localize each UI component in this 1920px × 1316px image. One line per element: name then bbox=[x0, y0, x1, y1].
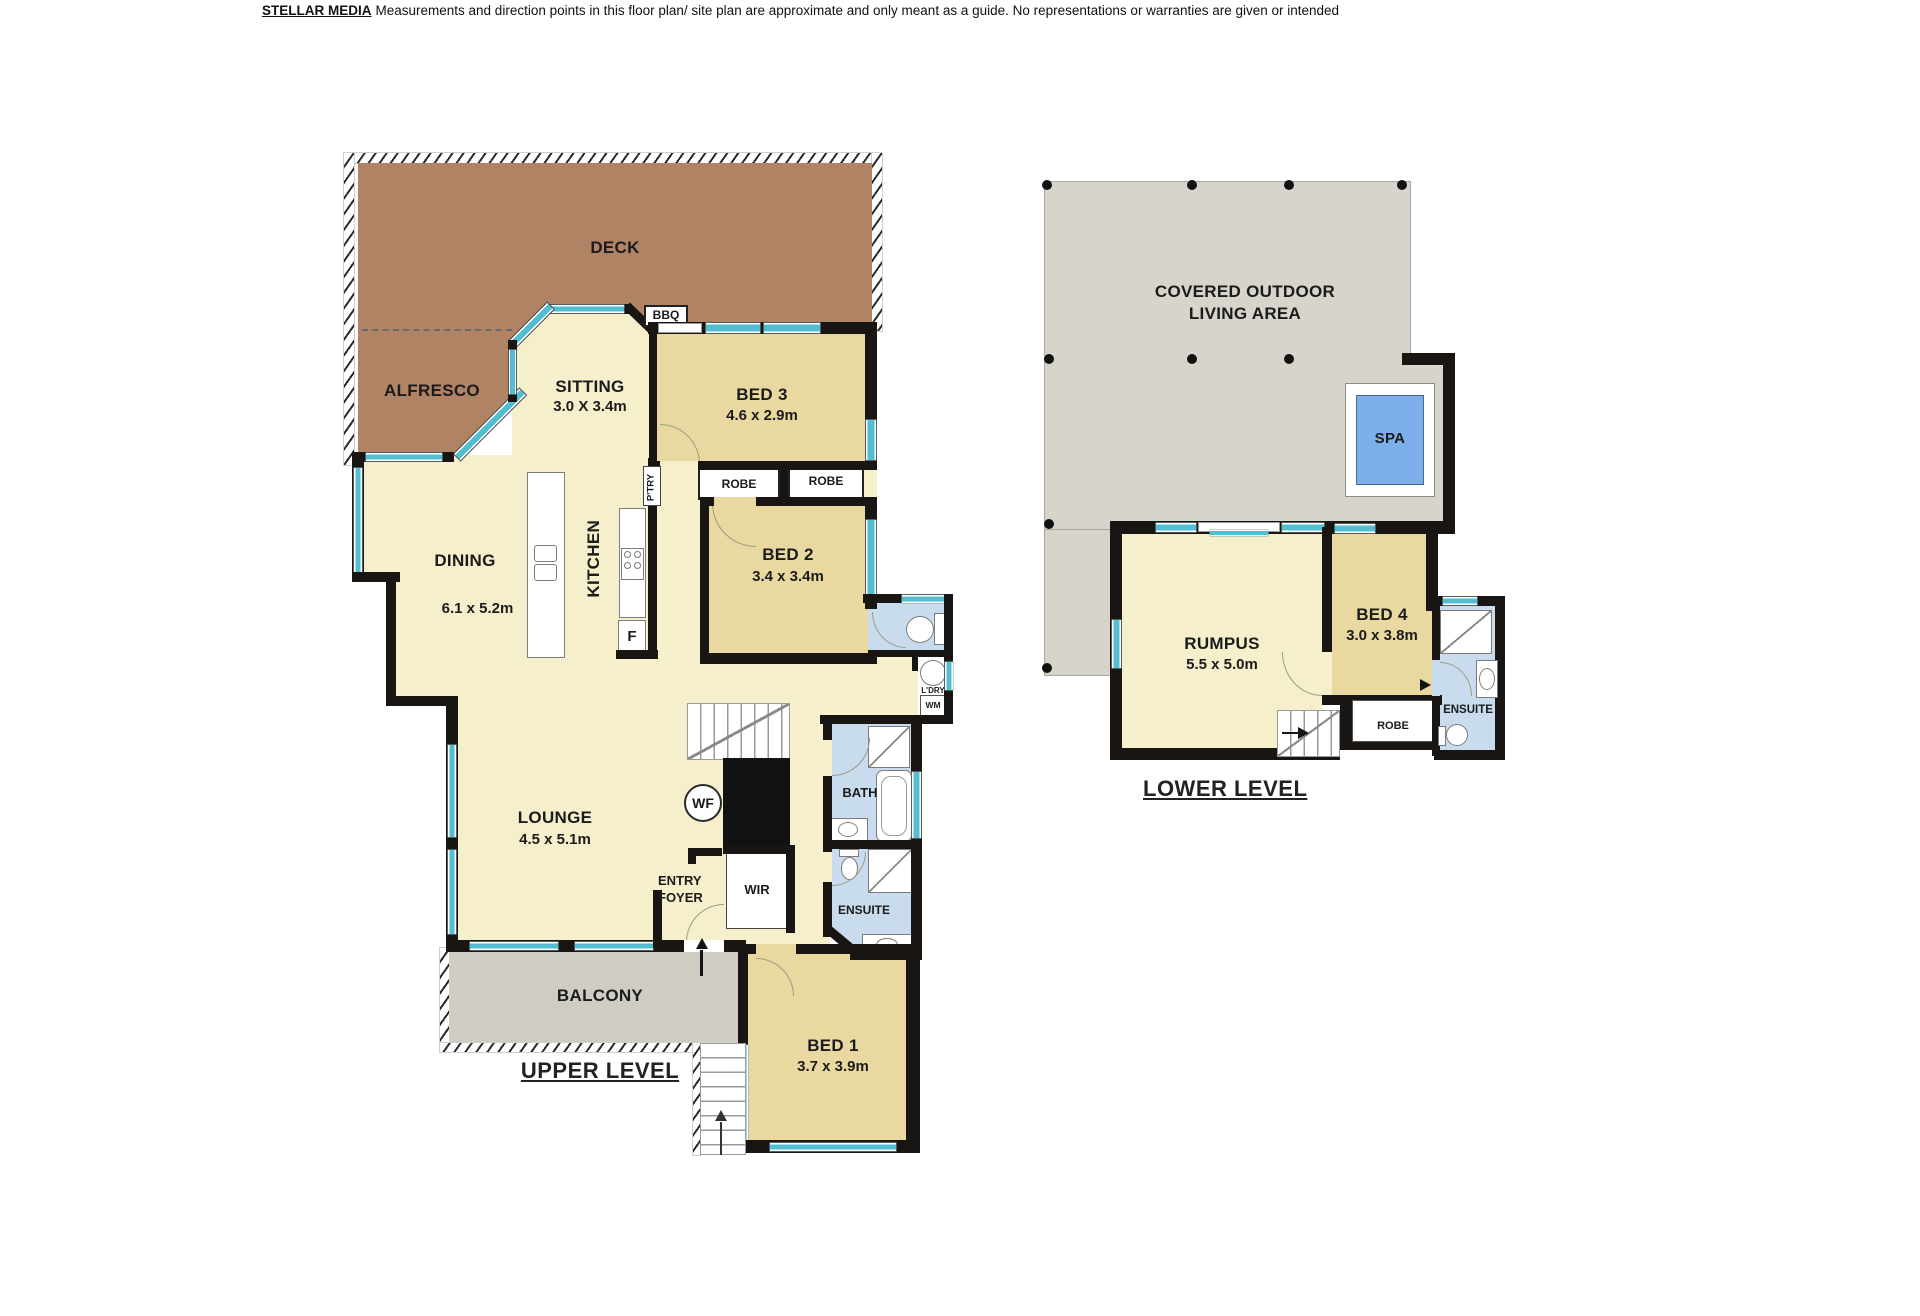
balcony-railing-left bbox=[440, 948, 449, 1052]
bed3-dims: 4.6 x 2.9m bbox=[702, 407, 822, 424]
stair-void bbox=[723, 758, 790, 852]
ext-stairs-arrow-line bbox=[720, 1122, 722, 1155]
wall-wc-right bbox=[944, 594, 953, 722]
window-rumpus-top2 bbox=[1210, 530, 1268, 536]
dining-label: DINING bbox=[410, 551, 520, 571]
ptry-label: P'TRY bbox=[647, 467, 658, 507]
bed4-name: BED 4 bbox=[1330, 605, 1434, 625]
window-bed3-white bbox=[658, 323, 702, 333]
bbq-label: BBQ bbox=[645, 309, 687, 323]
wall-west-mid bbox=[386, 572, 396, 704]
window-bath-right bbox=[912, 772, 921, 838]
window-sitting-baytop bbox=[551, 305, 624, 313]
stove-burner-2 bbox=[634, 551, 641, 558]
rumpus-name: RUMPUS bbox=[1162, 634, 1282, 654]
wall-bath-left bbox=[823, 715, 832, 847]
enslow-door-gap bbox=[1432, 660, 1440, 696]
bathtub bbox=[876, 770, 912, 842]
deck-railing-top bbox=[344, 153, 882, 163]
lounge-dims: 4.5 x 5.1m bbox=[495, 831, 615, 848]
fridge-label: F bbox=[620, 628, 644, 645]
robe2-label: ROBE bbox=[790, 475, 862, 489]
post-8 bbox=[1044, 519, 1054, 529]
window-rumpus-left bbox=[1112, 620, 1121, 668]
kitchen-label: KITCHEN bbox=[584, 494, 604, 624]
stairs-diagonal bbox=[688, 704, 789, 759]
laundry-tub bbox=[920, 660, 946, 686]
window-sitting-west bbox=[509, 350, 516, 394]
wall-bath-top bbox=[820, 715, 953, 724]
wir-label: WIR bbox=[727, 883, 787, 898]
ext-stairs-arrow-head bbox=[715, 1110, 727, 1121]
window-bed4-top bbox=[1335, 524, 1375, 533]
ensuite-label: ENSUITE bbox=[826, 904, 902, 918]
enslow-shower bbox=[1440, 610, 1492, 654]
window-rumpus-top1 bbox=[1156, 523, 1196, 532]
entry-wall-stub-hook bbox=[688, 848, 696, 864]
ext-stairs-rail bbox=[693, 1043, 700, 1155]
sitting-name: SITTING bbox=[530, 377, 650, 397]
wall-bath-ens bbox=[823, 840, 922, 849]
wall-bed2-left bbox=[700, 497, 709, 663]
post-2 bbox=[1187, 180, 1197, 190]
enslow-toilet-bowl bbox=[1446, 724, 1468, 746]
bathtub-inner bbox=[881, 776, 907, 836]
ens-shower bbox=[868, 849, 912, 893]
disclaimer-text: Measurements and direction points in thi… bbox=[376, 3, 1340, 18]
bath-label: BATH bbox=[830, 786, 890, 801]
entry-arrow-head bbox=[696, 938, 708, 949]
window-bed3-b bbox=[764, 323, 820, 333]
outdoor-area-left bbox=[1045, 530, 1118, 675]
wall-kitchen-end bbox=[616, 650, 658, 659]
deck-railing-right bbox=[872, 153, 882, 331]
ensuite-lower-label: ENSUITE bbox=[1438, 704, 1498, 717]
outdoor-label-2: LIVING AREA bbox=[1150, 304, 1340, 324]
post-5 bbox=[1044, 354, 1054, 364]
ens-door-gap bbox=[823, 852, 832, 882]
window-bed1-bottom bbox=[770, 1143, 896, 1151]
stairs-lower-arrow-head bbox=[1298, 727, 1309, 739]
wc-toilet-bowl bbox=[906, 616, 934, 643]
window-wc-top bbox=[902, 595, 944, 603]
window-lounge-bottom1 bbox=[470, 942, 558, 950]
stove-burner-3 bbox=[624, 562, 631, 569]
rumpus-dims: 5.5 x 5.0m bbox=[1162, 656, 1282, 673]
window-bed3-a bbox=[706, 323, 760, 333]
wall-ens-right bbox=[911, 845, 922, 960]
bed3-door-gap bbox=[660, 461, 698, 470]
wir-wall-top bbox=[723, 846, 790, 854]
wall-ldry-left bbox=[912, 657, 918, 671]
stove-burner-1 bbox=[624, 551, 631, 558]
upper-level-title: UPPER LEVEL bbox=[520, 1058, 680, 1083]
bed2-door-gap bbox=[714, 497, 756, 506]
bed1-door-gap bbox=[756, 944, 796, 954]
balcony-label: BALCONY bbox=[540, 986, 660, 1006]
wall-bed1-right bbox=[906, 944, 920, 1153]
window-lounge-west2 bbox=[448, 850, 456, 934]
bath-basin bbox=[838, 822, 858, 837]
wf-label: WF bbox=[686, 795, 720, 811]
enslow-cistern bbox=[1438, 726, 1446, 746]
post-7 bbox=[1284, 354, 1294, 364]
kitchen-sink2 bbox=[534, 564, 557, 581]
outdoor-label-1: COVERED OUTDOOR bbox=[1150, 282, 1340, 302]
sitting-dims: 3.0 X 3.4m bbox=[530, 398, 650, 415]
stove-burner-4 bbox=[634, 562, 641, 569]
deck-railing-left bbox=[344, 153, 354, 465]
ext-stairs bbox=[700, 1043, 746, 1155]
entry-arrow-line bbox=[700, 950, 703, 976]
window-ldry-right bbox=[945, 662, 953, 690]
deck-alfresco-divider bbox=[362, 329, 512, 331]
window-bed3-right bbox=[866, 420, 876, 460]
bed4-dims: 3.0 x 3.8m bbox=[1330, 627, 1434, 644]
robe1-label: ROBE bbox=[700, 478, 778, 492]
bed4-door-arrow bbox=[1420, 679, 1431, 691]
bed3-name: BED 3 bbox=[702, 385, 822, 405]
bed2-dims: 3.4 x 3.4m bbox=[728, 568, 848, 585]
bath-shower bbox=[868, 726, 910, 768]
post-4 bbox=[1397, 180, 1407, 190]
spa-label: SPA bbox=[1355, 430, 1425, 447]
lower-level-title: LOWER LEVEL bbox=[1143, 776, 1303, 801]
bed1-dims: 3.7 x 3.9m bbox=[773, 1058, 893, 1075]
window-alfresco-bottom bbox=[366, 453, 442, 461]
entry-label-1: ENTRY bbox=[650, 874, 728, 889]
wall-ext-right bbox=[1443, 353, 1455, 533]
entry-label-2: FOYER bbox=[650, 891, 728, 906]
dining-dims: 6.1 x 5.2m bbox=[420, 600, 535, 617]
wall-bed2-bottom bbox=[700, 653, 877, 664]
wall-enslow-bottom bbox=[1434, 750, 1505, 760]
enslow-basin bbox=[1479, 668, 1495, 690]
disclaimer: STELLAR MEDIAMeasurements and direction … bbox=[262, 3, 1339, 18]
window-dining-west bbox=[354, 468, 362, 572]
bed2-name: BED 2 bbox=[728, 545, 848, 565]
wall-bed3-left bbox=[649, 330, 657, 468]
window-lounge-west1 bbox=[448, 745, 456, 837]
kitchen-sink bbox=[534, 545, 557, 562]
floorplan-canvas: STELLAR MEDIAMeasurements and direction … bbox=[0, 0, 1920, 1316]
deck-label: DECK bbox=[560, 238, 670, 258]
stairs-upper bbox=[687, 703, 790, 760]
robe-lower-label: ROBE bbox=[1354, 720, 1432, 733]
bath-door-gap bbox=[823, 740, 832, 776]
post-6 bbox=[1187, 354, 1197, 364]
wir-wall-right bbox=[786, 845, 795, 933]
lounge-name: LOUNGE bbox=[495, 808, 615, 828]
post-1 bbox=[1042, 180, 1052, 190]
post-3 bbox=[1284, 180, 1294, 190]
alfresco-label: ALFRESCO bbox=[372, 381, 492, 401]
window-bed2-right bbox=[866, 520, 876, 598]
window-lounge-bottom2 bbox=[575, 942, 653, 950]
rumpus-door-gap bbox=[1322, 652, 1332, 696]
wm-label: WM bbox=[920, 701, 946, 711]
wall-wc-bottom bbox=[868, 650, 946, 657]
hall-fill-a2 bbox=[868, 655, 918, 722]
bed1-name: BED 1 bbox=[773, 1036, 893, 1056]
disclaimer-brand: STELLAR MEDIA bbox=[262, 3, 372, 18]
window-enslow-top bbox=[1443, 597, 1477, 605]
window-rumpus-top3 bbox=[1282, 523, 1324, 532]
post-9 bbox=[1042, 663, 1052, 673]
